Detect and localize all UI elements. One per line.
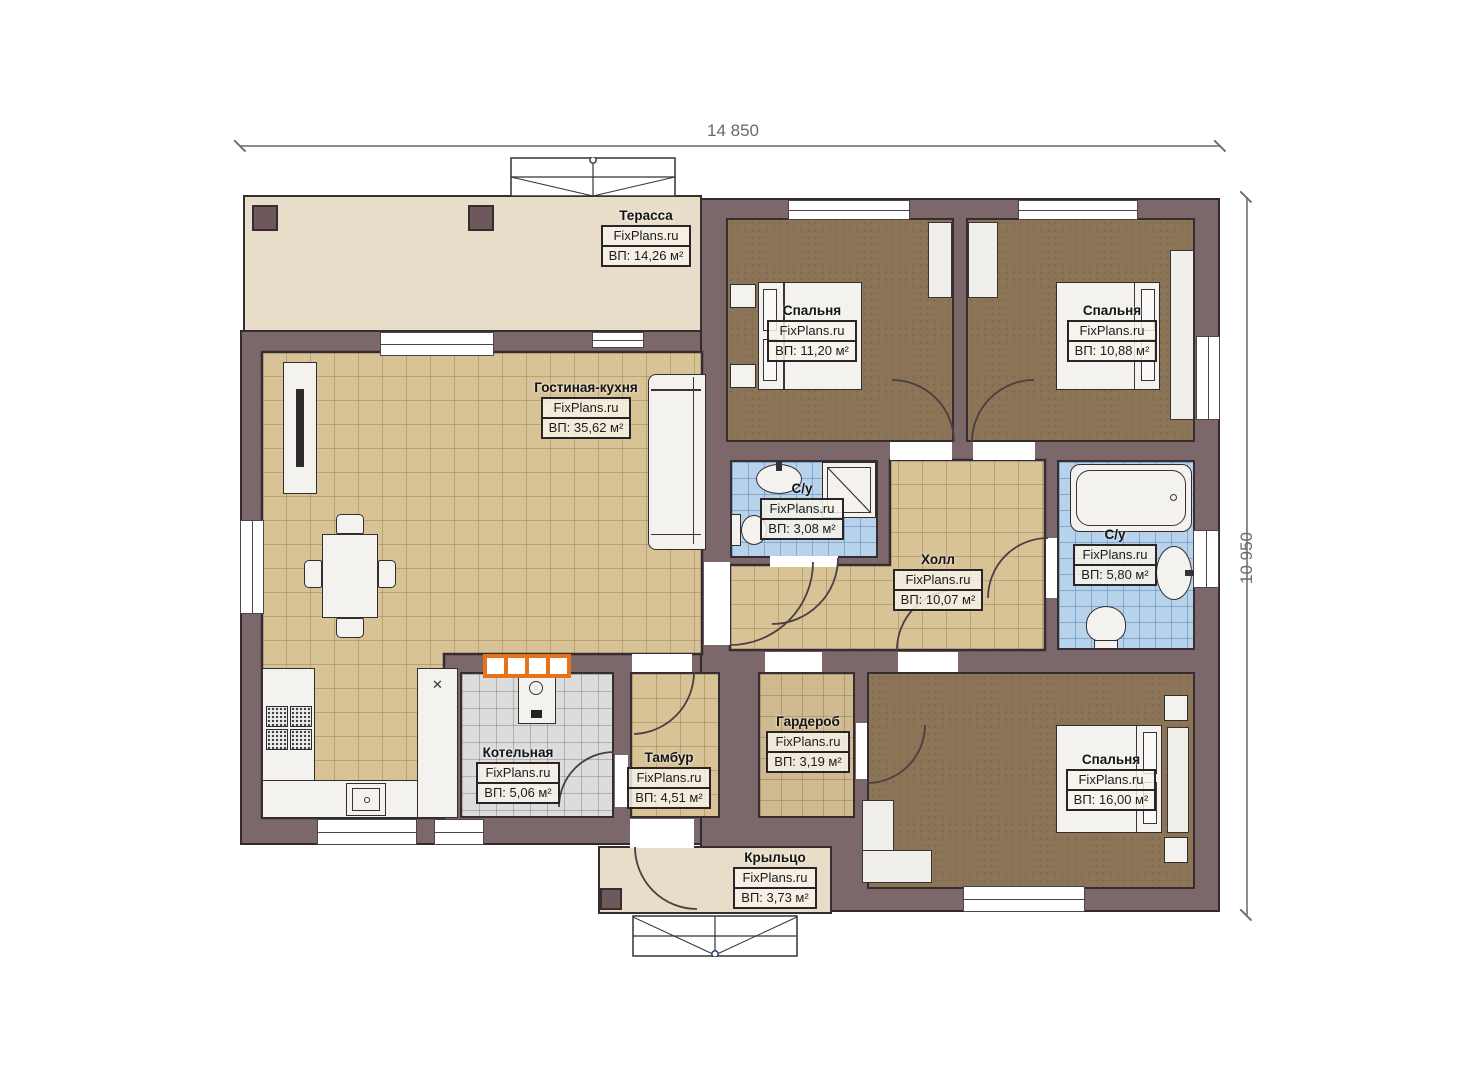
floor-plan-page: { "dimensions": { "width_label": "14 850…	[0, 0, 1473, 1080]
door-opening	[630, 819, 694, 848]
window	[380, 332, 494, 356]
tv-stand-icon	[283, 362, 317, 494]
chair-icon	[378, 560, 396, 588]
sofa-icon	[648, 374, 706, 550]
kitchen-sink-icon	[346, 783, 386, 816]
appliance-x-icon: ✕	[418, 677, 457, 693]
terrace-column-icon	[252, 205, 278, 231]
dimension-height-label: 10 950	[1237, 513, 1257, 603]
stove-burner-icon	[290, 706, 312, 727]
stove-burner-icon	[266, 729, 288, 750]
brand-label: FixPlans.ru	[478, 764, 557, 782]
brand-label: FixPlans.ru	[768, 733, 847, 751]
room-area: ВП: 4,51 м²	[629, 787, 708, 807]
room-name: С/у	[791, 481, 812, 496]
window	[788, 200, 910, 220]
room-name: Холл	[921, 552, 955, 567]
dining-table-icon	[322, 534, 378, 618]
brand-label: FixPlans.ru	[735, 869, 814, 887]
door-opening	[1046, 538, 1057, 598]
window	[240, 520, 264, 614]
room-area: ВП: 14,26 м²	[603, 245, 690, 265]
terrace-steps-icon	[510, 157, 676, 197]
room-label-wardrobe: Гардероб FixPlans.ruВП: 3,19 м²	[761, 714, 855, 773]
room-label-bedroom-3: Спальня FixPlans.ruВП: 16,00 м²	[1062, 752, 1160, 811]
brand-label: FixPlans.ru	[769, 322, 855, 340]
porch-column-icon	[600, 888, 622, 910]
door-opening	[973, 442, 1035, 460]
window	[1196, 336, 1220, 420]
room-label-bedroom-1: Спальня FixPlans.ruВП: 11,20 м²	[764, 303, 860, 362]
toilet-icon	[1094, 640, 1118, 649]
stove-burner-icon	[290, 729, 312, 750]
terrace-column-icon	[468, 205, 494, 231]
nightstand-icon	[1164, 695, 1188, 721]
room-label-vestibule: Тамбур FixPlans.ruВП: 4,51 м²	[622, 750, 716, 809]
window	[592, 332, 644, 348]
brand-label: FixPlans.ru	[629, 769, 708, 787]
nightstand-icon	[1164, 837, 1188, 863]
toilet-icon	[1086, 606, 1126, 642]
window	[434, 819, 484, 845]
nightstand-icon	[730, 364, 756, 388]
brand-label: FixPlans.ru	[1075, 546, 1154, 564]
chair-icon	[336, 618, 364, 638]
door-opening	[632, 654, 692, 672]
door-opening	[856, 723, 867, 779]
stove-burner-icon	[266, 706, 288, 727]
door-opening	[770, 556, 838, 567]
room-label-hall: Холл FixPlans.ruВП: 10,07 м²	[890, 552, 986, 611]
stove-hood-icon	[546, 654, 571, 678]
corner-closet-icon	[862, 850, 932, 883]
window	[963, 886, 1085, 912]
room-name: Спальня	[783, 303, 841, 318]
closet-icon	[928, 222, 952, 298]
room-label-boiler-room: Котельная FixPlans.ruВП: 5,06 м²	[470, 745, 566, 804]
chair-icon	[336, 514, 364, 534]
kitchen-counter-icon	[262, 780, 418, 818]
room-label-bathroom-2: С/у FixPlans.ruВП: 5,80 м²	[1068, 527, 1162, 586]
room-name: Спальня	[1082, 752, 1140, 767]
brand-label: FixPlans.ru	[1068, 771, 1155, 789]
window	[1018, 200, 1138, 220]
room-area: ВП: 3,73 м²	[735, 887, 814, 907]
room-name: Тамбур	[645, 750, 694, 765]
room-label-bathroom-1: С/у FixPlans.ruВП: 3,08 м²	[755, 481, 849, 540]
toilet-icon	[731, 514, 741, 546]
room-area: ВП: 11,20 м²	[769, 340, 855, 360]
closet-icon	[1167, 727, 1189, 833]
room-area: ВП: 5,06 м²	[478, 782, 557, 802]
nightstand-icon	[730, 284, 756, 308]
room-name: Спальня	[1083, 303, 1141, 318]
room-label-living-kitchen: Гостиная-кухня FixPlans.ruВП: 35,62 м²	[531, 380, 641, 439]
porch-steps-icon	[632, 915, 798, 957]
dimension-width-label: 14 850	[688, 121, 778, 141]
brand-label: FixPlans.ru	[543, 399, 630, 417]
door-opening	[765, 652, 822, 672]
kitchen-cabinet-icon: ✕	[417, 668, 458, 818]
dimension-line-horizontal	[240, 145, 1220, 147]
room-area: ВП: 10,07 м²	[895, 589, 982, 609]
room-area: ВП: 16,00 м²	[1068, 789, 1155, 809]
chair-icon	[304, 560, 322, 588]
brand-label: FixPlans.ru	[762, 500, 841, 518]
room-area: ВП: 10,88 м²	[1069, 340, 1156, 360]
brand-label: FixPlans.ru	[895, 571, 982, 589]
room-label-porch: Крыльцо FixPlans.ruВП: 3,73 м²	[728, 850, 822, 909]
room-name: Крыльцо	[744, 850, 805, 865]
brand-label: FixPlans.ru	[603, 227, 690, 245]
closet-icon	[968, 222, 998, 298]
brand-label: FixPlans.ru	[1069, 322, 1156, 340]
room-label-bedroom-2: Спальня FixPlans.ruВП: 10,88 м²	[1064, 303, 1160, 362]
room-name: Гардероб	[776, 714, 840, 729]
room-name: Гостиная-кухня	[534, 380, 637, 395]
room-area: ВП: 5,80 м²	[1075, 564, 1154, 584]
door-opening	[890, 442, 952, 460]
room-name: Котельная	[483, 745, 554, 760]
room-area: ВП: 35,62 м²	[543, 417, 630, 437]
bathtub-icon	[1070, 464, 1192, 532]
window	[1193, 530, 1219, 588]
boiler-icon	[518, 676, 556, 724]
room-name: Терасса	[619, 208, 673, 223]
door-opening	[898, 652, 958, 672]
room-area: ВП: 3,08 м²	[762, 518, 841, 538]
closet-icon	[1170, 250, 1194, 420]
window	[317, 819, 417, 845]
door-opening	[704, 562, 730, 645]
room-label-terrace: Терасса FixPlans.ruВП: 14,26 м²	[598, 208, 694, 267]
room-name: С/у	[1104, 527, 1125, 542]
room-area: ВП: 3,19 м²	[768, 751, 847, 771]
